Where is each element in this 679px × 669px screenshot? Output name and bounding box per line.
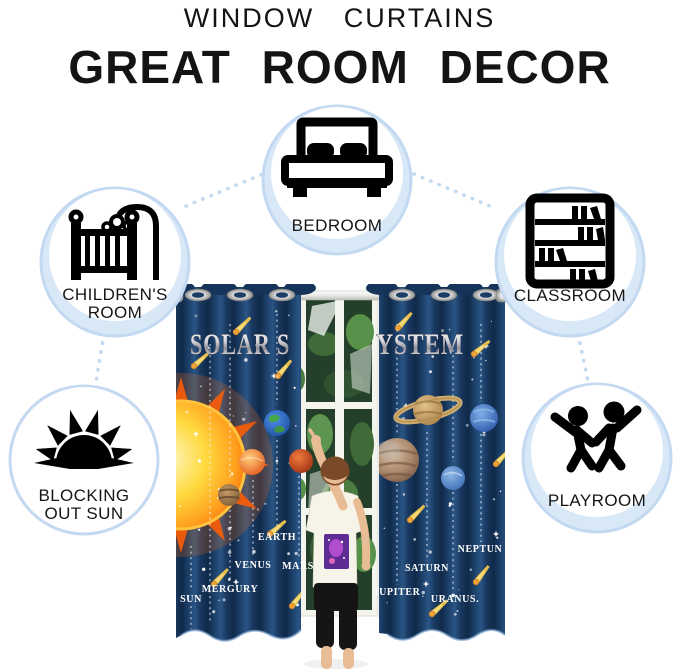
badge-bedroom: BEDROOM [257, 100, 417, 260]
badge-bedroom-label: BEDROOM [257, 217, 417, 235]
label-neptune: NEPTUN [458, 544, 503, 555]
headline-left: SOLAR S [190, 328, 290, 361]
badge-sun-label-line2: OUT SUN [4, 505, 164, 523]
label-mars: MARS [282, 561, 314, 572]
badge-childrens-label-line2: ROOM [35, 304, 195, 322]
label-uranus: URANUS. [431, 594, 479, 605]
label-mercury: MERGURY [202, 584, 259, 595]
badge-classroom-graphic [490, 182, 650, 342]
product-infographic: WINDOW CURTAINS GREAT ROOM DECOR BEDRO [0, 0, 679, 669]
badge-playroom-label: PLAYROOM [517, 492, 677, 510]
grommets-right [389, 289, 499, 301]
grommets-left [185, 289, 295, 301]
connector-bedroom-classroom [414, 174, 490, 206]
badge-bedroom-graphic [257, 100, 417, 260]
label-sun: SUN [180, 594, 202, 605]
headline-right: YSTEM [376, 328, 464, 361]
curtain-photo: SUN MERGURY VENUS EARTH MARS SOLAR S [174, 284, 508, 669]
label-venus: VENUS [235, 560, 272, 571]
label-earth: EARTH [258, 532, 296, 543]
badge-sun-label-line1: BLOCKING [4, 487, 164, 505]
curtain-panel-right: JUPITER SATURN URANUS. NEPTUN YSTEM [366, 284, 508, 640]
badge-playroom-graphic [517, 378, 677, 538]
planet-mercury [218, 484, 240, 506]
planet-neptune [441, 466, 465, 490]
planet-uranus [470, 404, 498, 432]
badge-blocking-out-sun: BLOCKING OUT SUN [4, 380, 164, 540]
curtain-panel-left: SUN MERGURY VENUS EARTH MARS SOLAR S [174, 284, 316, 641]
connector-childrens-bedroom [186, 174, 263, 206]
label-jupiter: JUPITER [374, 587, 421, 598]
planet-mars [289, 449, 313, 473]
planet-venus [239, 449, 265, 475]
label-saturn: SATURN [405, 563, 449, 574]
badge-classroom-label: CLASSROOM [490, 287, 650, 305]
badge-classroom: CLASSROOM [490, 182, 650, 342]
badge-playroom: PLAYROOM [517, 378, 677, 538]
badge-childrens-label-line1: CHILDREN'S [35, 286, 195, 304]
badge-childrens-room: CHILDREN'S ROOM [35, 182, 195, 342]
